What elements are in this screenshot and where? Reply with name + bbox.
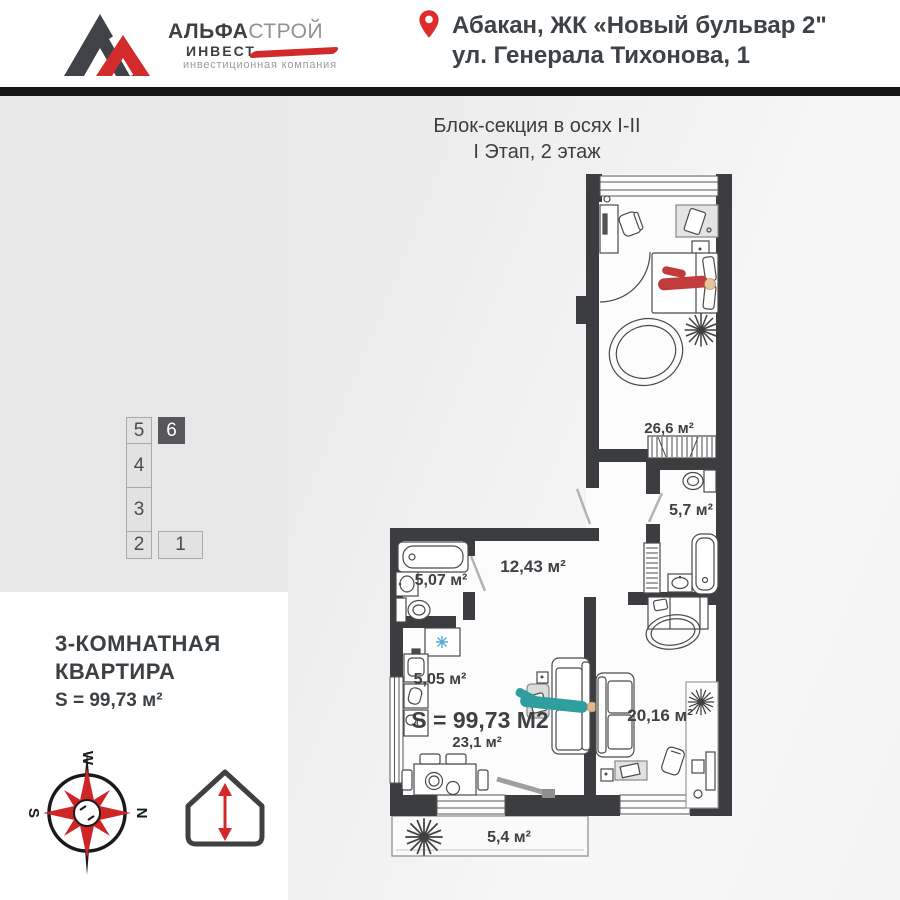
- walls: [390, 174, 732, 816]
- label-kitchen-area: 5,05 м²: [414, 671, 467, 688]
- label-bedroom2-area: 20,16 м²: [627, 706, 693, 725]
- windows: [390, 176, 718, 814]
- bedroom1-furniture: [600, 196, 718, 458]
- label-hallway-area: 12,43 м²: [500, 557, 566, 576]
- label-bath-small-area: 5,7 м²: [669, 502, 713, 519]
- apartment-info: 3-КОМНАТНАЯ КВАРТИРА S = 99,73 м²: [55, 630, 221, 712]
- section-cell-2: 2: [126, 531, 152, 559]
- label-total-area: S = 99,73 М2: [411, 707, 548, 733]
- towel-radiator: [644, 543, 660, 593]
- door-swings: [471, 489, 662, 591]
- apartment-title-line1: 3-КОМНАТНАЯ: [55, 630, 221, 658]
- address-line1: Абакан, ЖК «Новый бульвар 2": [452, 11, 827, 41]
- bathroom-small-fixtures: [644, 470, 718, 594]
- plant-icon: [688, 689, 714, 715]
- section-cell-6-selected: 6: [158, 417, 185, 444]
- wardrobe-strip: [686, 682, 718, 808]
- living-furniture: [402, 658, 597, 795]
- label-bathroom-area: 5,07 м²: [415, 572, 468, 589]
- apartment-title-line2: КВАРТИРА: [55, 658, 221, 686]
- logo-subtitle: ИНВЕСТ: [186, 43, 256, 59]
- project-address: Абакан, ЖК «Новый бульвар 2" ул. Генерал…: [452, 11, 827, 71]
- logo-name-light: СТРОЙ: [248, 20, 323, 43]
- logo-red-swoosh: [248, 47, 339, 58]
- person-on-bed: [658, 266, 716, 291]
- coffee-table: [527, 684, 549, 718]
- divider-bar: [0, 87, 900, 96]
- location-pin-icon: [418, 9, 440, 39]
- sofa-2: [596, 673, 634, 757]
- person-on-sofa: [514, 687, 597, 714]
- section-title: Блок-секция в осях I-II I Этап, 2 этаж: [377, 113, 697, 165]
- logo-tagline: инвестиционная компания: [183, 59, 337, 71]
- fridge: [425, 628, 460, 656]
- dining-table: [414, 764, 476, 795]
- room-labels: 26,6 м² 5,7 м² 12,43 м² 5,07 м² 5,05 м² …: [411, 420, 713, 846]
- label-bedroom1-area: 26,6 м²: [644, 420, 693, 437]
- logo-name: АЛЬФАСТРОЙ: [168, 20, 323, 44]
- section-cell-1: 1: [158, 531, 203, 559]
- alfastroy-logo-icon: [64, 10, 160, 76]
- section-title-line2: I Этап, 2 этаж: [377, 139, 697, 165]
- balcony-door: [497, 779, 555, 798]
- kitchen-fixtures: [404, 628, 460, 736]
- building-section-selector: 5 6 4 3 2 1: [126, 417, 204, 559]
- plant-icon: [685, 314, 718, 347]
- section-cell-4: 4: [126, 443, 152, 488]
- bathroom-fixtures: [396, 542, 468, 622]
- bedroom2-furniture: [596, 597, 718, 808]
- section-title-line1: Блок-секция в осях I-II: [377, 113, 697, 139]
- header: АЛЬФАСТРОЙ ИНВЕСТ инвестиционная компани…: [0, 0, 900, 87]
- apartment-floor: [390, 174, 732, 816]
- label-living-area: 23,1 м²: [452, 734, 501, 751]
- balcony: [392, 816, 588, 856]
- address-line2: ул. Генерала Тихонова, 1: [452, 41, 827, 71]
- sofa: [552, 658, 590, 754]
- tv-stand: [615, 761, 647, 780]
- logo-name-bold: АЛЬФА: [168, 20, 248, 43]
- section-cell-3: 3: [126, 487, 152, 532]
- section-cell-5: 5: [126, 417, 152, 444]
- label-balcony-area: 5,4 м²: [487, 829, 531, 846]
- snowflake-icon: [436, 636, 448, 648]
- built-in-closet: [648, 436, 716, 458]
- apartment-area: S = 99,73 м²: [55, 690, 221, 712]
